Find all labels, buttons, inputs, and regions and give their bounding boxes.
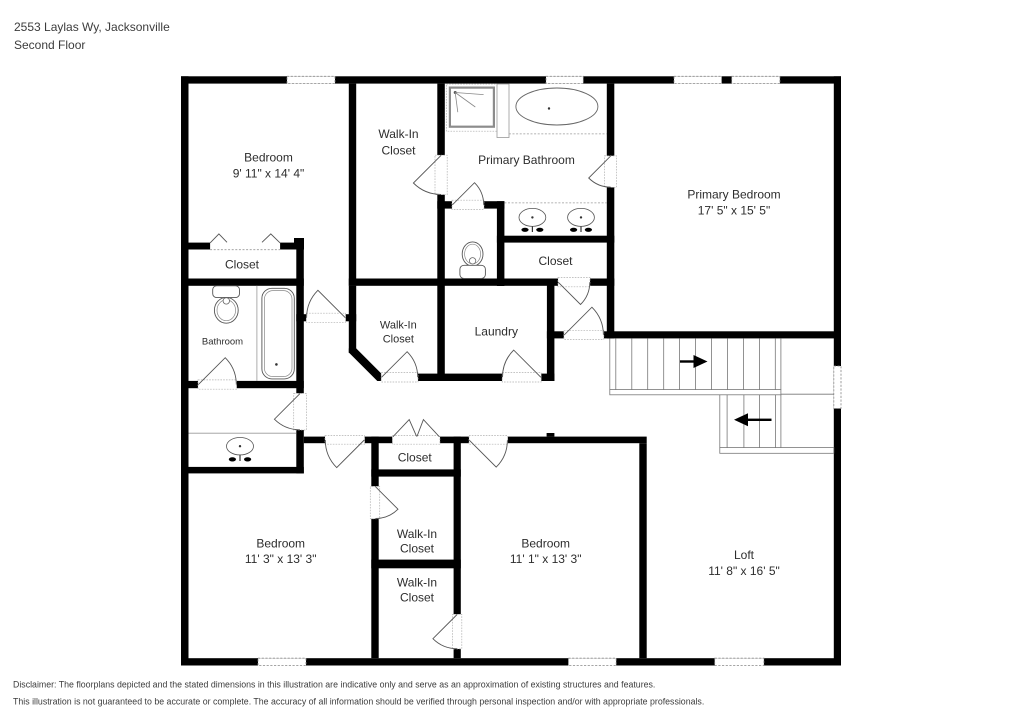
svg-text:Second Floor: Second Floor: [14, 38, 85, 52]
svg-text:Disclaimer: The floorplans dep: Disclaimer: The floorplans depicted and …: [13, 679, 655, 689]
svg-text:Closet: Closet: [398, 450, 433, 464]
svg-text:9' 11" x 14' 4": 9' 11" x 14' 4": [233, 167, 305, 181]
svg-text:11' 8" x 16' 5": 11' 8" x 16' 5": [708, 564, 780, 578]
svg-text:17' 5" x 15' 5": 17' 5" x 15' 5": [698, 204, 770, 218]
svg-text:Closet: Closet: [400, 591, 435, 605]
svg-text:Closet: Closet: [225, 258, 260, 272]
svg-text:Walk-In: Walk-In: [380, 320, 417, 332]
svg-text:This illustration is not guara: This illustration is not guaranteed to b…: [13, 696, 704, 706]
svg-text:Loft: Loft: [734, 548, 755, 562]
svg-text:Bedroom: Bedroom: [244, 151, 293, 165]
svg-text:11' 3" x 13' 3": 11' 3" x 13' 3": [245, 552, 317, 566]
svg-text:Laundry: Laundry: [475, 325, 518, 339]
svg-text:Bedroom: Bedroom: [256, 537, 305, 551]
svg-text:2553 Laylas Wy, Jacksonville: 2553 Laylas Wy, Jacksonville: [14, 20, 170, 34]
svg-text:11' 1" x 13' 3": 11' 1" x 13' 3": [510, 552, 582, 566]
svg-text:Walk-In: Walk-In: [397, 527, 437, 541]
svg-text:Primary Bedroom: Primary Bedroom: [687, 188, 780, 202]
svg-text:Walk-In: Walk-In: [397, 576, 437, 590]
svg-text:Primary Bathroom: Primary Bathroom: [478, 153, 575, 167]
svg-text:Walk-In: Walk-In: [378, 127, 418, 141]
svg-text:Closet: Closet: [383, 333, 414, 345]
svg-text:Bathroom: Bathroom: [202, 337, 243, 348]
svg-text:Closet: Closet: [381, 144, 416, 158]
svg-text:Bedroom: Bedroom: [521, 536, 570, 550]
svg-text:Closet: Closet: [400, 542, 435, 556]
svg-text:Closet: Closet: [538, 254, 573, 268]
